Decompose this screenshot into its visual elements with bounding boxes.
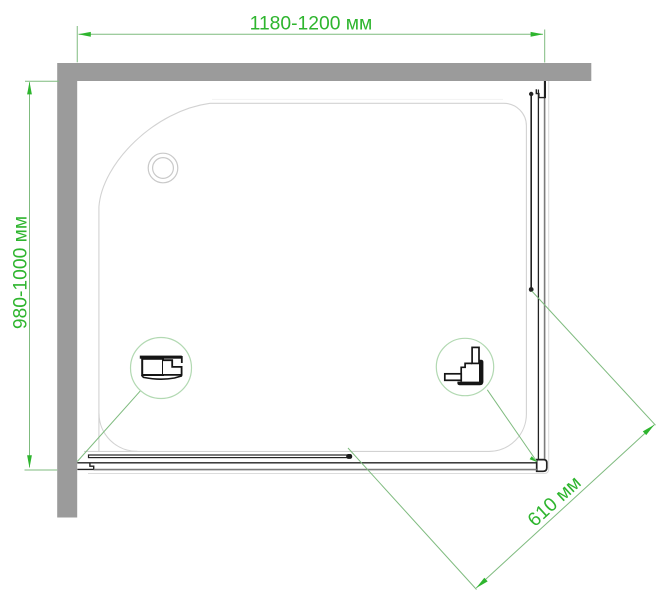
svg-text:980-1000 мм: 980-1000 мм	[11, 216, 32, 329]
svg-text:1180-1200 мм: 1180-1200 мм	[250, 13, 373, 34]
